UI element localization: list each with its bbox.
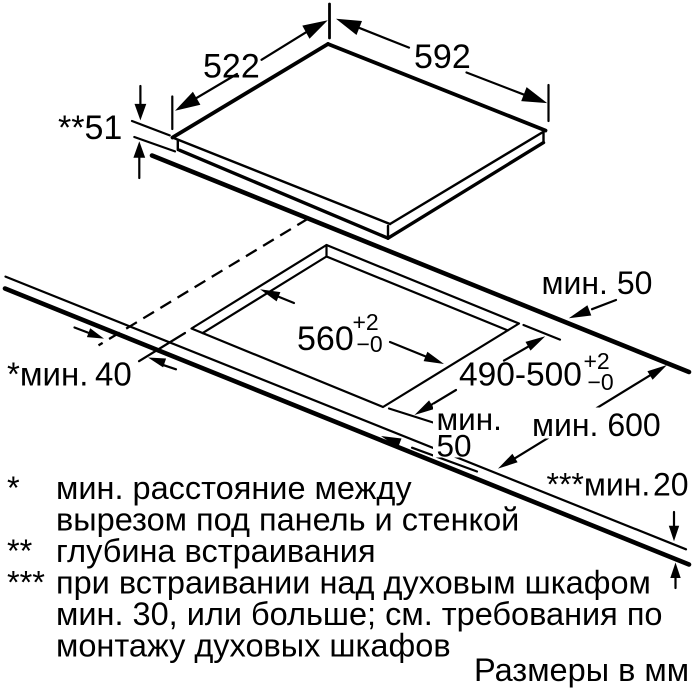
svg-text:Размеры в мм: Размеры в мм (474, 652, 689, 688)
svg-text:−0: −0 (588, 369, 614, 395)
svg-text:490-500: 490-500 (459, 357, 582, 394)
svg-text:522: 522 (203, 48, 260, 86)
svg-text:−0: −0 (357, 331, 383, 357)
svg-text:***: *** (7, 565, 45, 601)
svg-text:*: * (7, 470, 20, 506)
svg-text:592: 592 (414, 38, 471, 76)
svg-text:560: 560 (297, 320, 354, 358)
svg-text:монтажу духовых шкафов: монтажу духовых шкафов (56, 628, 451, 664)
svg-text:**51: **51 (58, 109, 122, 147)
svg-text:мин. 50: мин. 50 (542, 265, 653, 301)
svg-text:*мин. 40: *мин. 40 (7, 356, 132, 393)
svg-text:мин. 600: мин. 600 (532, 407, 661, 443)
svg-text:50: 50 (437, 428, 472, 464)
svg-text:***мин. 20: ***мин. 20 (547, 467, 689, 503)
